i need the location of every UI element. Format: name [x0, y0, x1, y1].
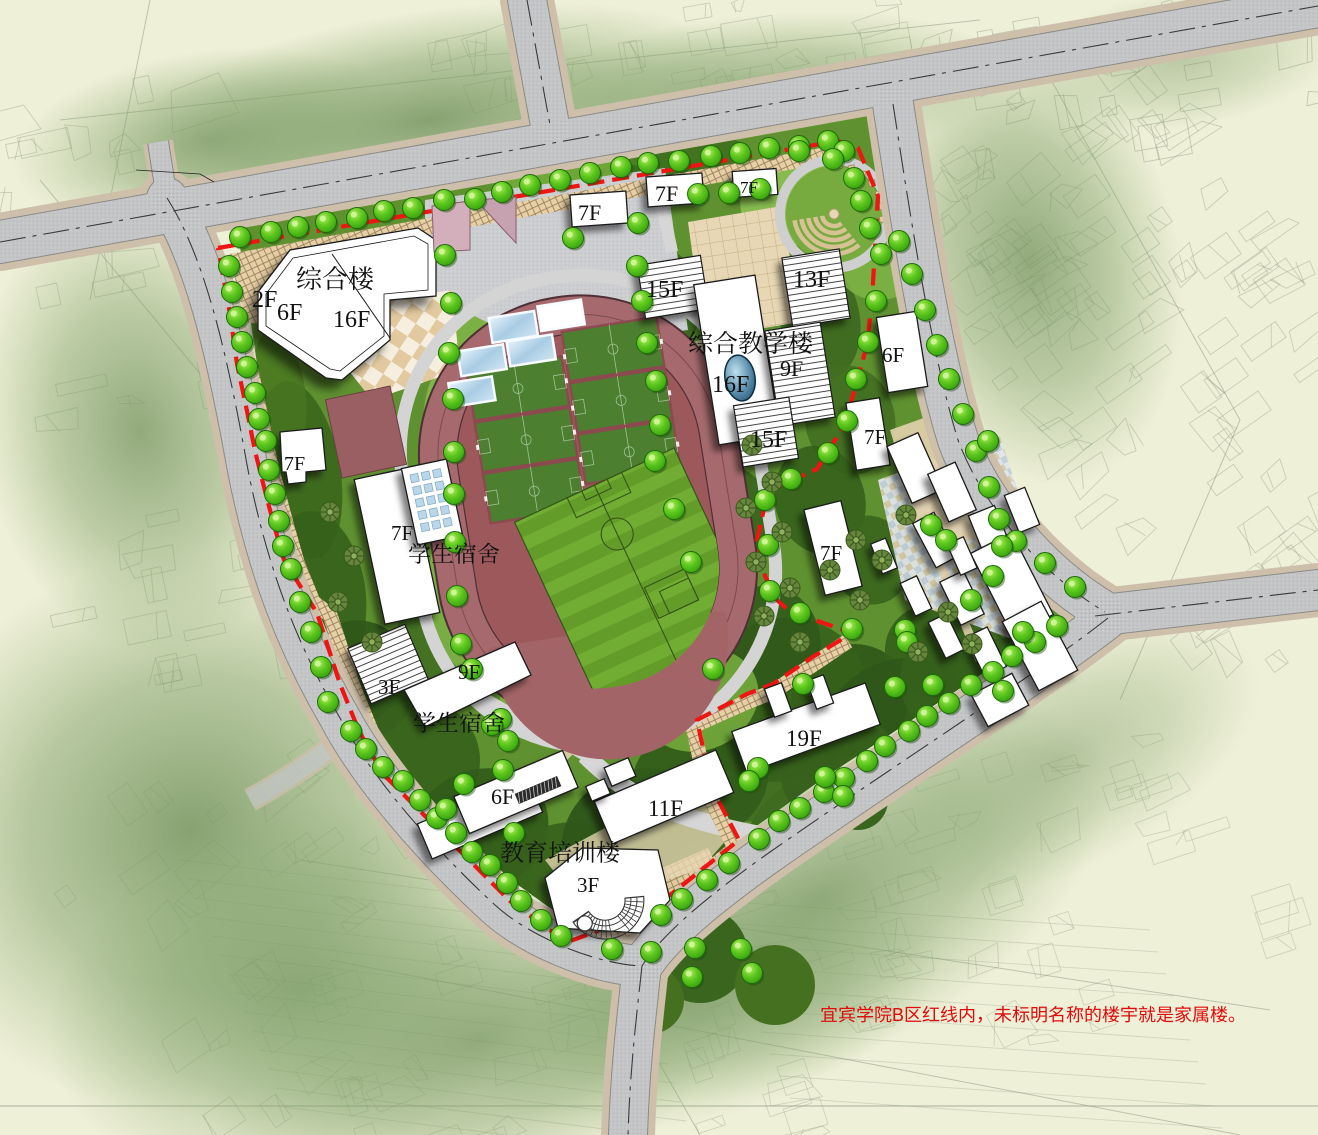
svg-text:9F: 9F	[780, 356, 803, 381]
svg-text:16F: 16F	[712, 372, 749, 398]
svg-text:7F: 7F	[578, 200, 601, 225]
svg-text:7F: 7F	[740, 178, 758, 197]
svg-text:2F: 2F	[252, 287, 277, 313]
svg-text:13F: 13F	[793, 267, 830, 293]
svg-text:6F: 6F	[277, 300, 302, 326]
svg-text:7F: 7F	[820, 541, 842, 565]
svg-text:9F: 9F	[458, 660, 480, 684]
svg-text:7F: 7F	[391, 521, 413, 545]
svg-text:19F: 19F	[786, 726, 822, 751]
svg-text:7F: 7F	[655, 181, 678, 206]
svg-text:3F: 3F	[378, 675, 400, 699]
svg-text:3F: 3F	[577, 873, 599, 897]
svg-text:6F: 6F	[491, 784, 514, 809]
svg-text:16F: 16F	[333, 307, 370, 333]
svg-text:15F: 15F	[646, 277, 683, 303]
svg-text:11F: 11F	[648, 796, 683, 821]
svg-text:7F: 7F	[284, 453, 305, 475]
svg-text:7F: 7F	[864, 425, 886, 449]
svg-text:15F: 15F	[750, 427, 787, 453]
svg-text:6F: 6F	[882, 343, 904, 367]
svg-text:B: B	[892, 1005, 904, 1025]
